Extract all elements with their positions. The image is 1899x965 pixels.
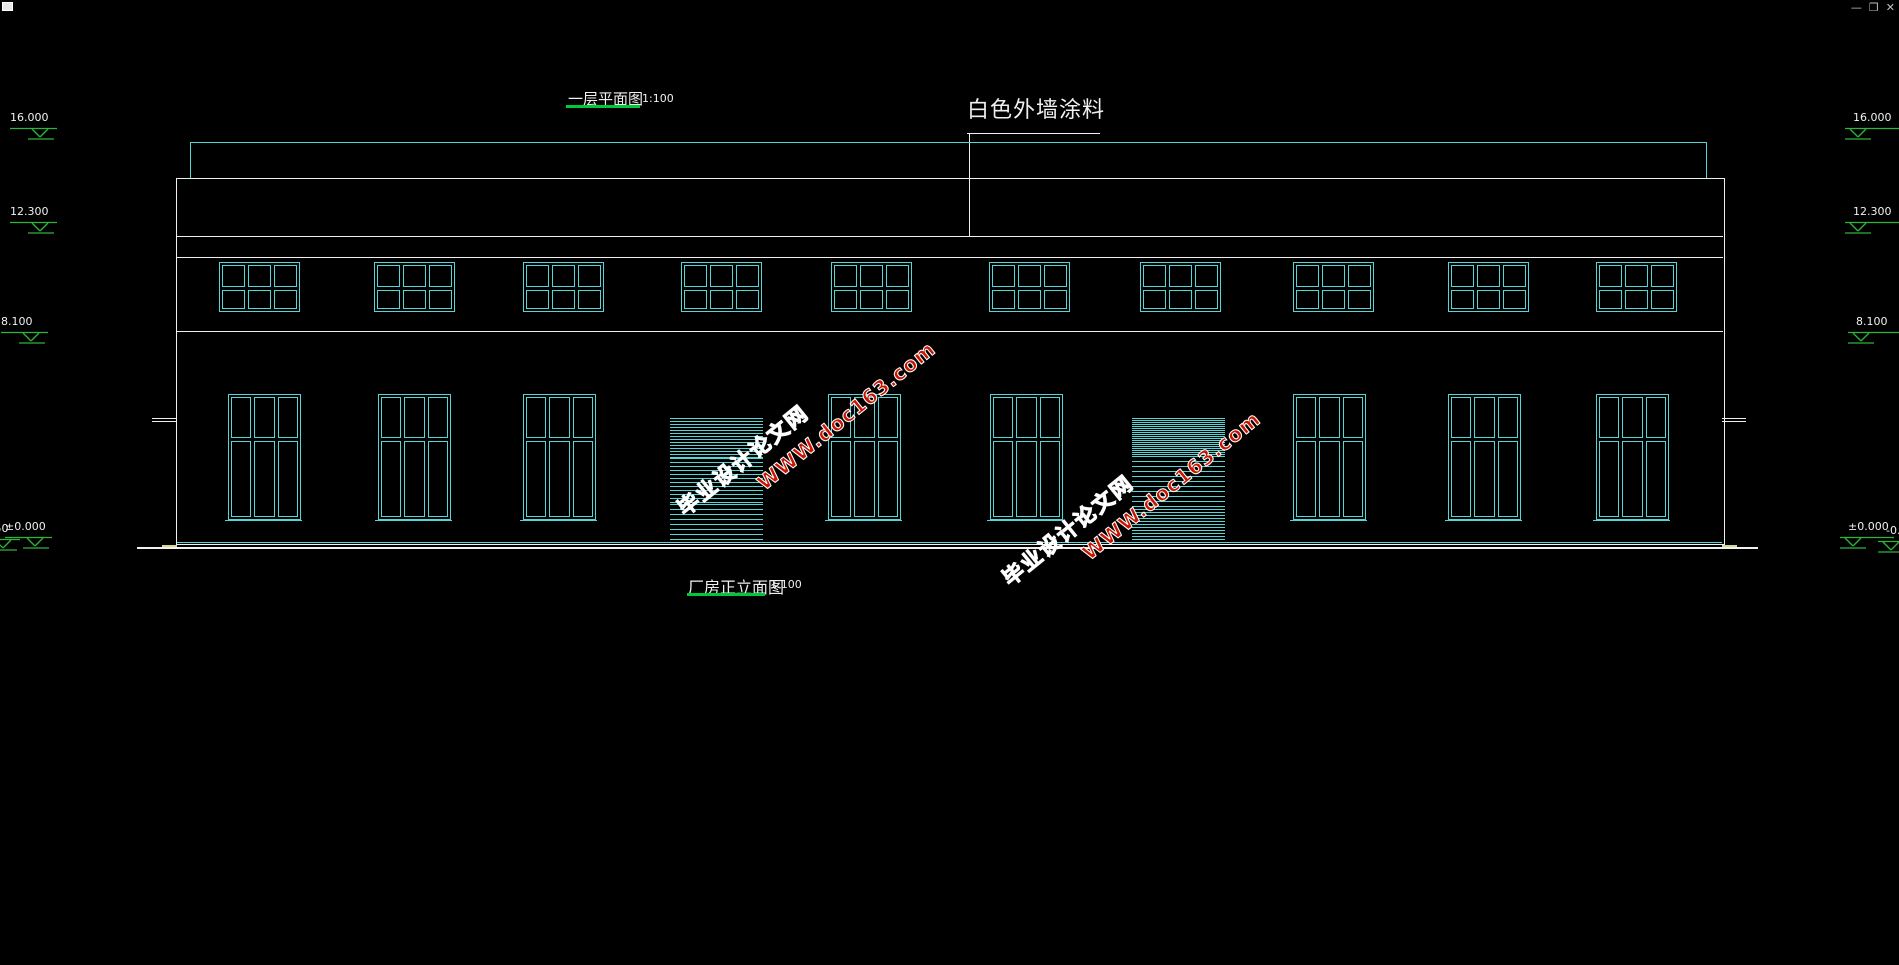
window-pane xyxy=(222,265,245,287)
window-pane xyxy=(1143,290,1166,309)
window-pane xyxy=(736,265,759,287)
window-sill-6 xyxy=(1290,520,1367,521)
window-pane xyxy=(1322,265,1345,287)
window-pane xyxy=(886,290,909,309)
right-wall-tick-1 xyxy=(1722,421,1746,422)
window-pane xyxy=(993,441,1013,517)
window-pane xyxy=(854,441,874,517)
upper-window-2 xyxy=(374,262,455,312)
window-pane xyxy=(1296,290,1319,309)
window-pane xyxy=(278,441,298,517)
window-pane xyxy=(403,290,426,309)
window-pane xyxy=(1343,441,1363,517)
right-wall-tick-0 xyxy=(1722,418,1746,419)
window-pane xyxy=(1322,290,1345,309)
window-sill-3 xyxy=(520,520,597,521)
window-pane xyxy=(1040,441,1060,517)
facade-band-line-0 xyxy=(176,236,1723,237)
window-pane xyxy=(231,397,251,438)
window-pane xyxy=(1474,397,1494,438)
window-pane xyxy=(254,441,274,517)
window-pane xyxy=(1044,265,1067,287)
upper-window-8-panes xyxy=(1296,265,1371,309)
window-pane xyxy=(1646,441,1666,517)
facade-band-line-1 xyxy=(176,257,1723,258)
window-pane xyxy=(1018,290,1041,309)
left-wall-tick-0 xyxy=(152,418,176,419)
window-pane xyxy=(377,265,400,287)
elevation-value: ±0.000 xyxy=(5,520,46,533)
level-symbol xyxy=(1878,541,1899,555)
plan-title-underline xyxy=(566,105,640,108)
window-pane xyxy=(248,265,271,287)
window-pane xyxy=(552,265,575,287)
window-pane xyxy=(1498,397,1518,438)
elevation-value: ±0.000 xyxy=(1848,520,1889,533)
window-pane xyxy=(1296,441,1316,517)
window-pane xyxy=(274,265,297,287)
upper-window-1-panes xyxy=(222,265,297,309)
window-pane xyxy=(1498,441,1518,517)
elevation-value: 12.300 xyxy=(1853,205,1892,218)
ground-window-5-panes xyxy=(993,397,1060,517)
window-pane xyxy=(381,441,401,517)
parapet-end-left xyxy=(190,142,191,178)
window-sill-8 xyxy=(1593,520,1670,521)
upper-window-5 xyxy=(831,262,912,312)
window-pane xyxy=(578,265,601,287)
window-pane xyxy=(578,290,601,309)
window-pane xyxy=(1343,397,1363,438)
upper-window-3 xyxy=(523,262,604,312)
upper-window-6 xyxy=(989,262,1070,312)
level-symbol xyxy=(10,128,66,142)
level-symbol xyxy=(1848,332,1899,346)
window-pane xyxy=(1169,290,1192,309)
elevation-title-underline xyxy=(687,593,765,596)
window-pane xyxy=(736,290,759,309)
window-pane xyxy=(1451,265,1474,287)
ground-window-3 xyxy=(523,394,596,520)
window-pane xyxy=(526,290,549,309)
left-wall-tick-1 xyxy=(152,421,176,422)
upper-window-8 xyxy=(1293,262,1374,312)
window-pane xyxy=(381,397,401,438)
window-sill-2 xyxy=(375,520,452,521)
window-pane xyxy=(684,265,707,287)
window-pane xyxy=(993,397,1013,438)
window-pane xyxy=(526,441,546,517)
parapet-top-line xyxy=(190,142,1706,143)
window-pane xyxy=(1622,441,1642,517)
window-pane xyxy=(429,290,452,309)
window-pane xyxy=(1348,265,1371,287)
window-sill-4 xyxy=(825,520,902,521)
elevation-value: 16.000 xyxy=(1853,111,1892,124)
minimize-icon[interactable]: — xyxy=(1851,1,1862,14)
upper-window-4-panes xyxy=(684,265,759,309)
window-pane xyxy=(1625,290,1648,309)
window-pane xyxy=(831,441,851,517)
window-pane xyxy=(1018,265,1041,287)
window-pane xyxy=(684,290,707,309)
upper-window-5-panes xyxy=(834,265,909,309)
upper-window-1 xyxy=(219,262,300,312)
window-pane xyxy=(552,290,575,309)
ground-window-7 xyxy=(1448,394,1521,520)
ground-window-6-panes xyxy=(1296,397,1363,517)
level-symbol xyxy=(10,222,66,236)
ground-window-6 xyxy=(1293,394,1366,520)
upper-window-2-panes xyxy=(377,265,452,309)
upper-window-10 xyxy=(1596,262,1677,312)
window-pane xyxy=(1646,397,1666,438)
window-pane xyxy=(429,265,452,287)
window-pane xyxy=(1503,265,1526,287)
building-base-line xyxy=(177,542,1722,543)
window-pane xyxy=(248,290,271,309)
elevation-value: 8.100 xyxy=(1856,315,1888,328)
window-pane xyxy=(834,290,857,309)
upper-window-7-panes xyxy=(1143,265,1218,309)
window-pane xyxy=(549,397,569,438)
window-pane xyxy=(1044,290,1067,309)
facade-band-line-2 xyxy=(176,331,1723,332)
window-pane xyxy=(1451,397,1471,438)
ground-window-8-panes xyxy=(1599,397,1666,517)
window-pane xyxy=(1474,441,1494,517)
window-pane xyxy=(274,290,297,309)
level-symbol xyxy=(1845,128,1899,142)
upper-window-9-panes xyxy=(1451,265,1526,309)
window-pane xyxy=(1625,265,1648,287)
window-controls: — ❐ ✕ xyxy=(1851,1,1895,14)
window-pane xyxy=(1143,265,1166,287)
window-pane xyxy=(1296,265,1319,287)
window-pane xyxy=(1477,290,1500,309)
ground-window-5 xyxy=(990,394,1063,520)
ground-window-2-panes xyxy=(381,397,448,517)
window-pane xyxy=(1599,397,1619,438)
window-pane xyxy=(1040,397,1060,438)
elevation-value: -0.450 xyxy=(0,522,8,535)
ground-window-8 xyxy=(1596,394,1669,520)
window-pane xyxy=(860,265,883,287)
window-pane xyxy=(1451,441,1471,517)
window-pane xyxy=(710,290,733,309)
plan-title-scale: 1:100 xyxy=(642,92,674,105)
window-pane xyxy=(254,397,274,438)
window-pane xyxy=(404,397,424,438)
window-pane xyxy=(1319,397,1339,438)
window-sill-5 xyxy=(987,520,1064,521)
level-symbol xyxy=(1,332,57,346)
window-pane xyxy=(1599,290,1622,309)
window-pane xyxy=(1169,265,1192,287)
upper-window-3-panes xyxy=(526,265,601,309)
window-pane xyxy=(404,441,424,517)
window-pane xyxy=(1451,290,1474,309)
parapet-end-right xyxy=(1706,142,1707,178)
window-pane xyxy=(573,441,593,517)
window-pane xyxy=(526,265,549,287)
wall-finish-label: 白色外墙涂料 xyxy=(967,92,1105,124)
window-pane xyxy=(1016,441,1036,517)
window-pane xyxy=(1503,290,1526,309)
window-pane xyxy=(549,441,569,517)
window-pane xyxy=(1651,265,1674,287)
level-symbol xyxy=(0,539,29,553)
window-pane xyxy=(1016,397,1036,438)
elevation-title-scale: 1:100 xyxy=(770,578,802,591)
window-pane xyxy=(278,397,298,438)
elevation-value: 12.300 xyxy=(10,205,49,218)
cad-drawing-canvas: — ❐ ✕ 一层平面图 1:100 白色外墙涂料 厂房正立面图 1:100 16… xyxy=(0,0,1899,965)
window-pane xyxy=(231,441,251,517)
elevation-value: 8.100 xyxy=(1,315,33,328)
wall-label-underline xyxy=(967,133,1100,134)
ground-line xyxy=(137,547,1758,549)
window-pane xyxy=(377,290,400,309)
window-pane xyxy=(222,290,245,309)
window-pane xyxy=(1195,290,1218,309)
ground-window-7-panes xyxy=(1451,397,1518,517)
window-pane xyxy=(834,265,857,287)
window-pane xyxy=(428,441,448,517)
window-pane xyxy=(428,397,448,438)
window-sill-7 xyxy=(1445,520,1522,521)
elevation-value: 16.000 xyxy=(10,111,49,124)
corner-chamfer-1 xyxy=(1722,545,1737,547)
ground-window-2 xyxy=(378,394,451,520)
window-pane xyxy=(878,441,898,517)
window-pane xyxy=(1599,265,1622,287)
window-pane xyxy=(860,290,883,309)
window-pane xyxy=(1622,397,1642,438)
ground-window-1-panes xyxy=(231,397,298,517)
upper-window-10-panes xyxy=(1599,265,1674,309)
window-pane xyxy=(992,290,1015,309)
upper-window-7 xyxy=(1140,262,1221,312)
upper-window-9 xyxy=(1448,262,1529,312)
window-pane xyxy=(1319,441,1339,517)
corner-chamfer-0 xyxy=(162,545,177,547)
window-pane xyxy=(1348,290,1371,309)
window-pane xyxy=(992,265,1015,287)
window-pane xyxy=(526,397,546,438)
elevation-value: -0.450 xyxy=(1886,524,1899,537)
window-pane xyxy=(573,397,593,438)
app-icon[interactable] xyxy=(2,2,13,11)
window-sill-1 xyxy=(225,520,302,521)
ground-window-3-panes xyxy=(526,397,593,517)
window-pane xyxy=(1477,265,1500,287)
window-pane xyxy=(403,265,426,287)
close-icon[interactable]: ✕ xyxy=(1886,1,1895,14)
window-pane xyxy=(710,265,733,287)
window-pane xyxy=(1195,265,1218,287)
window-pane xyxy=(886,265,909,287)
restore-icon[interactable]: ❐ xyxy=(1869,1,1879,14)
window-pane xyxy=(1296,397,1316,438)
window-pane xyxy=(1651,290,1674,309)
upper-window-6-panes xyxy=(992,265,1067,309)
level-symbol xyxy=(1845,222,1899,236)
upper-window-4 xyxy=(681,262,762,312)
window-pane xyxy=(1599,441,1619,517)
ground-window-1 xyxy=(228,394,301,520)
